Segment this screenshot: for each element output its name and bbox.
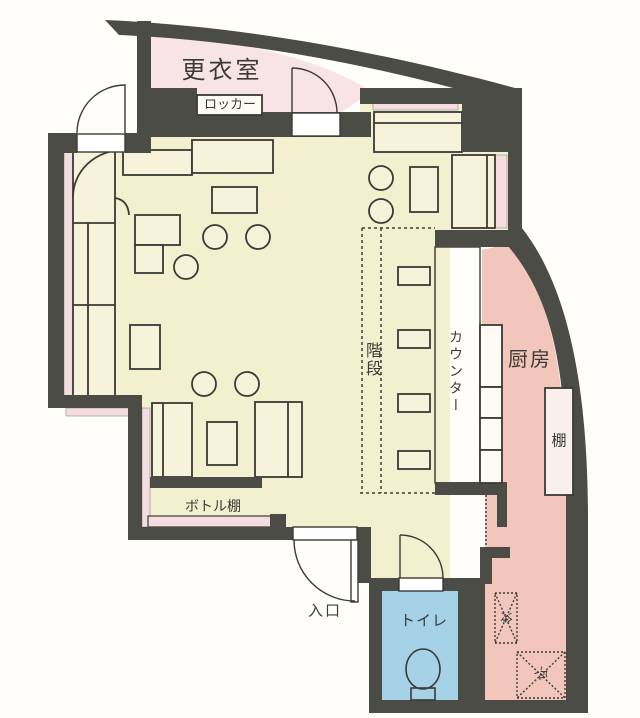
left-wall (48, 133, 64, 408)
kitchen-equipment (480, 387, 502, 418)
corner-wall-block (462, 88, 508, 152)
table-2 (130, 325, 160, 369)
counter-bottom-stub (497, 482, 507, 527)
label-bottle-shelf: ボトル棚 (185, 500, 241, 514)
kitchen-equipment (480, 325, 502, 387)
label-counter: カウンター (448, 330, 462, 415)
label-stairs: 階段 (364, 342, 380, 378)
label-shelf: 棚 (551, 434, 566, 449)
label-fridge-1: 冷 (500, 612, 512, 624)
counter-chair (398, 267, 430, 285)
label-locker: ロッカー (204, 99, 256, 112)
exterior-door-gap (77, 134, 125, 152)
kitchen-wall-stub-h (480, 547, 510, 558)
booth-table (207, 422, 237, 465)
room-label-changing-room: 更衣室 (182, 58, 263, 82)
booth-bench-right (255, 402, 302, 477)
kitchen-equipment (480, 418, 502, 450)
label-entrance: 入口 (308, 604, 342, 619)
lower-left-wall (128, 395, 142, 540)
counter-chair (398, 330, 430, 348)
top-bench-a (123, 150, 192, 175)
stool (235, 372, 259, 396)
toilet-door-gap (399, 578, 443, 591)
counter-bottom-wall (435, 482, 507, 495)
right-bench (452, 155, 495, 228)
top-wall-west-b (125, 133, 151, 153)
lower-left-wall-strip (142, 408, 150, 527)
bottle-shelf-stub (270, 514, 286, 528)
entrance-door-gap (293, 527, 357, 540)
table-3 (410, 167, 438, 212)
changing-room-left-wall (137, 21, 151, 137)
entrance-door-leaf (351, 540, 358, 602)
toilet-left-wall (369, 578, 382, 703)
kitchen-equipment (480, 450, 502, 483)
left-wall-strip (64, 147, 73, 397)
counter-chair (398, 394, 430, 412)
l-table-upper (135, 215, 180, 245)
table-1 (212, 187, 257, 213)
stool (369, 199, 393, 223)
stool (192, 372, 216, 396)
toilet-floor (382, 591, 458, 700)
entrance-door-arc (294, 540, 355, 601)
entrance-right-wall (357, 527, 371, 583)
toilet-right-wall (458, 578, 485, 703)
floor-plan: 更衣室 ロッカー 階段 カウンター 厨房 棚 ボトル棚 入口 トイレ 冷 冷 (0, 0, 640, 718)
stool (203, 225, 227, 249)
stool (369, 166, 393, 190)
booth-bench-left (152, 403, 192, 477)
bottle-shelf-strip (148, 516, 272, 527)
right-wall-upper (508, 88, 522, 235)
room-label-toilet: トイレ (400, 614, 448, 629)
counter-chair (398, 451, 430, 469)
room-label-kitchen: 厨房 (508, 349, 552, 369)
stool (246, 225, 270, 249)
right-bench-strip (495, 155, 507, 228)
l-table-lower (135, 245, 163, 273)
booth-partition-wall (150, 477, 262, 488)
changing-room-door-gap (292, 113, 340, 136)
top-bench-b (192, 140, 273, 173)
exterior-door-arc (77, 85, 125, 133)
top-right-bench (374, 112, 462, 152)
bottom-wall-left (128, 527, 293, 540)
toilet-top-wall-right (443, 578, 458, 591)
left-bench (73, 147, 115, 397)
stool (174, 255, 198, 279)
